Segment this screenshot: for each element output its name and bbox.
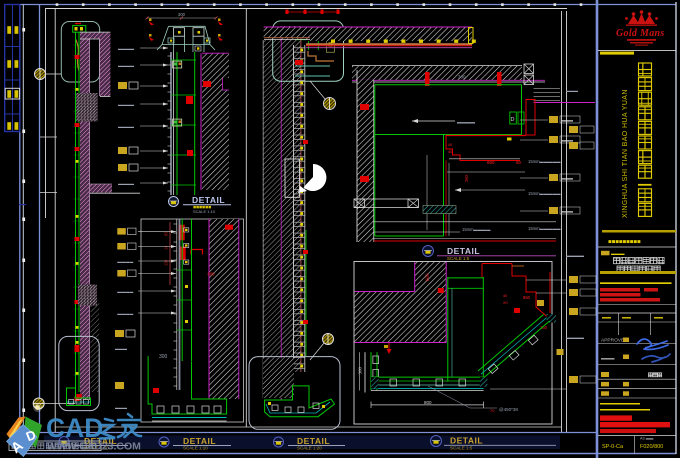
svg-text:▬▬▬▬: ▬▬▬▬ [118,124,134,129]
svg-text:X0: X0 [503,301,508,305]
svg-text:300: 300 [458,75,466,80]
svg-text:SCALE 1:20: SCALE 1:20 [297,446,322,451]
svg-text:SCALE 1:5: SCALE 1:5 [447,256,470,261]
svg-text:▬▬▬▬: ▬▬▬▬ [118,102,134,107]
svg-text:▬▬▬▬▬▬▬▬▬▬▬▬▬: ▬▬▬▬▬▬▬▬▬▬▬▬▬ [600,280,672,286]
svg-text:DETAIL: DETAIL [192,195,225,205]
svg-text:CAD: CAD [46,413,103,443]
svg-text:▬▬: ▬▬ [654,315,664,320]
svg-text:▬▬: ▬▬ [602,315,612,320]
svg-text:15mm▬▬▬▬: 15mm▬▬▬▬ [462,227,491,232]
svg-text:300: 300 [159,354,168,360]
svg-text:280: 280 [464,175,469,183]
svg-text:850: 850 [523,295,531,300]
svg-text:DETAIL: DETAIL [450,436,483,446]
svg-text:70: 70 [490,408,495,413]
svg-text:DETAIL: DETAIL [297,436,330,446]
svg-text:▬▬▬▬▬▬▬▬▬▬: ▬▬▬▬▬▬▬▬▬▬ [600,407,650,413]
svg-text:▬▬▬▬: ▬▬▬▬ [117,289,133,294]
svg-text:▬▬▬▬: ▬▬▬▬ [117,311,133,316]
svg-text:SP-0-Ca: SP-0-Ca [602,444,624,450]
svg-text:▬▬▬▬: ▬▬▬▬ [117,259,133,264]
svg-text:▬▬▬: ▬▬▬ [561,118,573,123]
svg-text:600: 600 [426,273,431,281]
svg-text:15mm▬▬▬▬▬: 15mm▬▬▬▬▬ [528,191,561,196]
svg-text:300: 300 [178,12,186,17]
svg-text:▬▬▬: ▬▬▬ [566,88,578,93]
svg-text:XINGHUA SHI TIAN BAO HUA YUAN: XINGHUA SHI TIAN BAO HUA YUAN [622,89,629,218]
svg-text:▬▬▬▬: ▬▬▬▬ [118,181,134,186]
svg-text:@450*38: @450*38 [499,407,518,412]
svg-text:05: 05 [164,232,169,236]
svg-text:300: 300 [358,367,363,375]
svg-text:▬▬▬▬: ▬▬▬▬ [566,253,585,258]
svg-text:▬▬▬: ▬▬▬ [115,346,127,351]
svg-text:▬▬▬▬: ▬▬▬▬ [457,120,476,125]
svg-text:D: D [511,117,515,123]
svg-text:WWW.CAD23.COM: WWW.CAD23.COM [47,441,141,453]
svg-text:SCALE 1:5: SCALE 1:5 [450,446,473,451]
svg-text:150: 150 [164,260,169,266]
svg-text:▬▬▬: ▬▬▬ [601,356,615,361]
svg-text:DETAIL: DETAIL [183,436,216,446]
svg-text:60: 60 [516,160,522,165]
svg-text:800: 800 [424,400,432,405]
svg-text:▬▬: ▬▬ [622,315,632,320]
svg-text:15mm▬▬▬▬▬: 15mm▬▬▬▬▬ [528,159,561,164]
svg-text:▬▬▬: ▬▬▬ [561,209,573,214]
svg-text:SCALE 1:10: SCALE 1:10 [193,209,216,214]
svg-text:850: 850 [487,160,495,165]
svg-text:▬▬▬▬: ▬▬▬▬ [118,46,134,51]
svg-text:40: 40 [448,143,452,147]
svg-text:DETAIL: DETAIL [447,246,480,256]
svg-text:▬▬▬▬: ▬▬▬▬ [118,63,134,68]
svg-text:F020/800: F020/800 [640,444,663,450]
svg-text:▬▬▬: ▬▬▬ [561,138,573,143]
svg-text:40: 40 [503,294,507,298]
svg-text:■■■■■■■■■: ■■■■■■■■■ [608,240,641,246]
svg-text:▬▬▬: ▬▬▬ [561,176,573,181]
svg-text:SCALE 1:10: SCALE 1:10 [183,446,208,451]
svg-text:▬▬▬: ▬▬▬ [611,251,625,256]
svg-text:Gold Mans: Gold Mans [616,28,665,39]
svg-text:A3 ▬▬: A3 ▬▬ [640,437,653,441]
svg-text:40: 40 [448,150,452,154]
svg-text:▬▬▬▬: ▬▬▬▬ [566,335,585,340]
svg-text:15mm▬▬▬▬▬: 15mm▬▬▬▬▬ [528,226,561,231]
svg-text:800: 800 [208,272,216,277]
svg-text:▬▬▬: ▬▬▬ [115,405,127,410]
